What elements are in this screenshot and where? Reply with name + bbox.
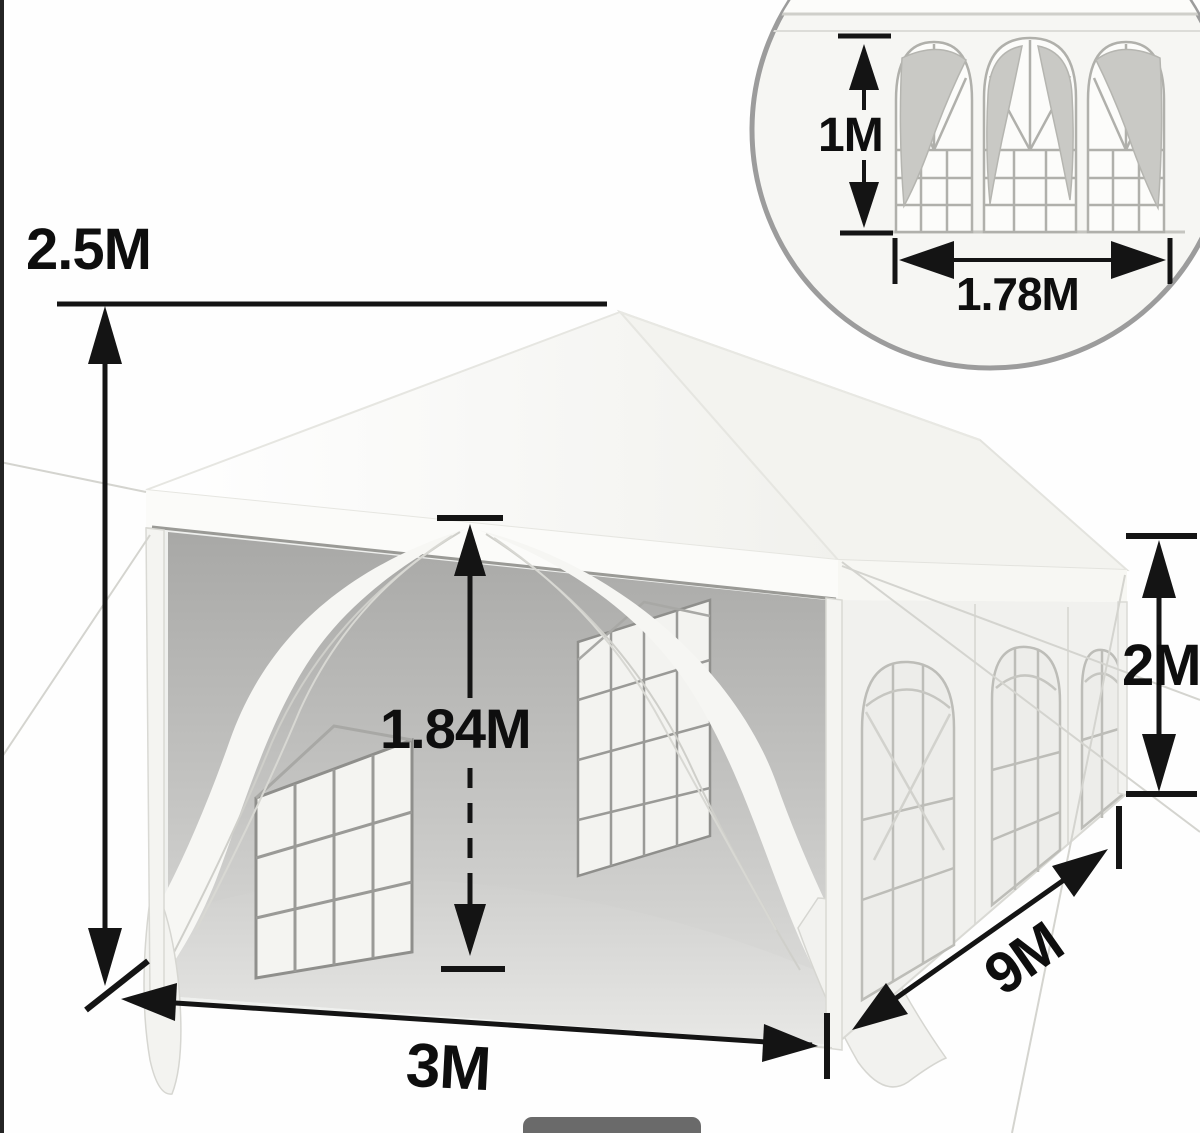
sidewall-window	[992, 647, 1060, 905]
bottom-handle[interactable]	[523, 1117, 701, 1133]
dim-label-sidewall-height: 2M	[1122, 637, 1200, 695]
interior-window	[578, 600, 710, 876]
screen-edge-strip	[0, 0, 4, 1133]
dim-label-front-width: 3M	[404, 1035, 491, 1101]
sidewall-window	[862, 662, 954, 1000]
inset-window-left	[896, 42, 972, 232]
dim-label-overall-height: 2.5M	[26, 221, 151, 279]
inset-window-center	[984, 38, 1076, 232]
dim-label-window-width: 1.78M	[956, 271, 1079, 317]
dim-label-window-height: 1M	[818, 112, 883, 160]
dim-label-entrance-height: 1.84M	[380, 701, 531, 757]
inset-window-right	[1088, 42, 1164, 232]
product-dimension-diagram: 2.5M 1.84M 3M 9M 2M 1M 1.78M	[0, 0, 1200, 1133]
sidewall-window	[1082, 650, 1122, 828]
